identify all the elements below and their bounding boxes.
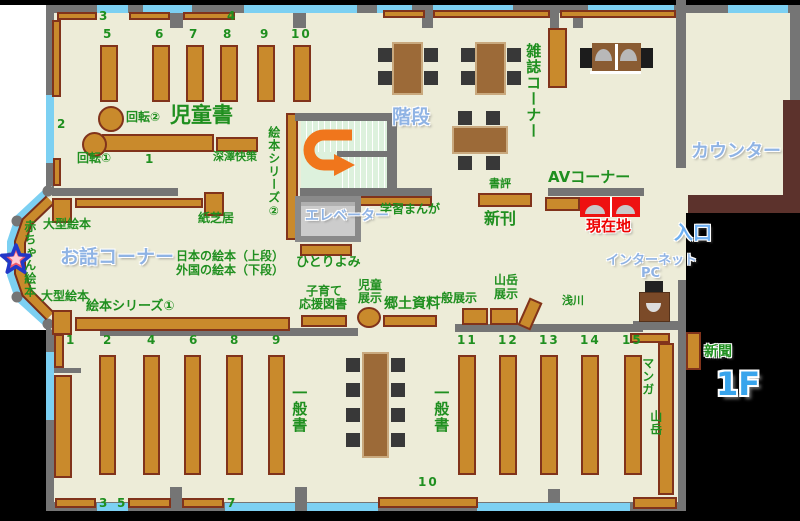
- bookshelf: [293, 45, 311, 102]
- sofa-armrest: [641, 48, 653, 68]
- shelf-number: 3: [99, 10, 107, 24]
- window: [728, 5, 788, 13]
- chair: [391, 433, 405, 447]
- area-label-stairs: 階段: [392, 108, 430, 127]
- bookshelf: [560, 10, 676, 18]
- chair: [458, 111, 472, 125]
- bookshelf: [540, 355, 558, 475]
- floor-label: 1F: [716, 368, 760, 400]
- u-turn-arrow-icon: [300, 123, 362, 185]
- shelf-label: 山岳: [648, 410, 662, 440]
- bookshelf: [433, 10, 550, 18]
- shelf-number: 4: [147, 334, 155, 348]
- chair: [391, 408, 405, 422]
- shelf-number: 3: [99, 497, 107, 511]
- chair: [486, 156, 500, 170]
- shelf-number: 5: [103, 28, 111, 42]
- wall: [676, 0, 686, 168]
- bookshelf: [75, 198, 203, 208]
- bookshelf: [99, 355, 116, 475]
- shelf-label: 学習まんが: [380, 203, 440, 217]
- area-label-elevator: エレベーター: [305, 209, 389, 223]
- area-label-kids-books: 児童書: [170, 103, 233, 127]
- shelf-number: 12: [498, 334, 519, 348]
- bookshelf: [226, 355, 243, 475]
- area-label-story-corner: お話コーナー: [60, 248, 174, 267]
- shelf-label: 絵本シリーズ①: [86, 300, 174, 315]
- shelf-label: 赤ちゃん絵本: [22, 220, 36, 320]
- wall: [633, 321, 686, 330]
- shelf-number: 11: [457, 334, 478, 348]
- shelf-label: 紙芝居: [198, 212, 234, 226]
- window: [46, 352, 54, 420]
- rotating-rack: [98, 106, 124, 132]
- bookshelf: [53, 158, 61, 186]
- chair: [378, 71, 392, 85]
- chair: [346, 408, 360, 422]
- window: [46, 95, 54, 163]
- shelf-label: 日本の絵本（上段）: [176, 250, 284, 264]
- area-label-av-corner: AVコーナー: [548, 169, 630, 186]
- exhibit-shelf: [462, 308, 488, 325]
- shelf-label: 回転①: [77, 152, 111, 166]
- bookshelf: [128, 498, 171, 508]
- shelf-label: 大型絵本: [43, 218, 91, 232]
- window: [307, 503, 378, 511]
- shelf-number: 8: [230, 334, 238, 348]
- shelf-number: 9: [260, 28, 268, 42]
- reading-table: [362, 352, 389, 458]
- wall: [790, 5, 800, 103]
- window: [225, 503, 295, 511]
- shelf-number: 2: [103, 334, 111, 348]
- area-label-newspaper: 新聞: [704, 344, 732, 360]
- shelf-label: 展示: [358, 292, 382, 306]
- bookshelf: [184, 355, 201, 475]
- bookshelf: [57, 12, 97, 20]
- newspaper-rack: [686, 332, 701, 370]
- sofa-divider: [615, 44, 618, 70]
- shelf-label: 大型絵本: [41, 290, 89, 304]
- wall-pillar: [548, 489, 560, 502]
- chair: [378, 48, 392, 62]
- shelf-label: 展示: [494, 288, 518, 302]
- bookshelf: [378, 497, 478, 508]
- bookshelf: [383, 10, 425, 18]
- shelf-number: 13: [539, 334, 560, 348]
- bookshelf: [257, 45, 275, 102]
- shelf-number: 10: [291, 28, 312, 42]
- shelf-label: 新刊: [484, 210, 516, 228]
- bookshelf: [478, 193, 532, 207]
- bookshelf: [52, 20, 61, 97]
- shelf-number: 14: [580, 334, 601, 348]
- chair: [458, 156, 472, 170]
- bookshelf: [143, 355, 160, 475]
- floor-map: 3 4 5 6 7 8 9 10 2 回転② 児童書 回転① 1 深澤快策 絵本…: [0, 0, 800, 521]
- shelf-number: 6: [189, 334, 197, 348]
- chair: [346, 358, 360, 372]
- current-location-label: 現在地: [586, 219, 631, 234]
- shelf-label: 山岳: [494, 274, 518, 288]
- area-label-general-books: 一般書: [432, 385, 449, 445]
- shelf-label: 絵本シリーズ②: [266, 126, 280, 226]
- shelf-number: 7: [189, 28, 197, 42]
- chair: [391, 383, 405, 397]
- pc-monitor-icon: [645, 281, 663, 292]
- wall: [46, 188, 178, 196]
- bookshelf: [102, 134, 214, 152]
- reading-table: [392, 42, 423, 95]
- bookshelf: [301, 315, 347, 327]
- shelf-number: 9: [272, 334, 280, 348]
- window: [477, 503, 630, 511]
- bookshelf: [52, 310, 72, 335]
- bookshelf: [54, 375, 72, 478]
- sofa-base: [590, 71, 641, 74]
- bookshelf: [220, 45, 238, 102]
- bookshelf: [383, 315, 437, 327]
- shelf-label: 深澤快策: [213, 151, 257, 164]
- shelf-number: 1: [145, 153, 153, 167]
- reading-table: [452, 126, 508, 154]
- chair: [507, 71, 521, 85]
- area-label-general-books: 一般書: [290, 385, 307, 445]
- shelf-label: 書評: [489, 178, 511, 191]
- shelf-number: 10: [418, 476, 439, 490]
- sofa-armrest: [580, 48, 592, 68]
- chair: [507, 48, 521, 62]
- bookshelf: [545, 197, 580, 211]
- chair: [391, 358, 405, 372]
- bookshelf: [268, 355, 285, 475]
- bookshelf: [75, 317, 290, 331]
- counter-desk: [688, 195, 800, 213]
- wall: [455, 324, 643, 332]
- bookshelf: [633, 497, 677, 509]
- window: [244, 5, 357, 13]
- bookshelf: [499, 355, 517, 475]
- bookshelf: [129, 12, 170, 20]
- bookshelf: [186, 45, 204, 102]
- shelf-number: 2: [57, 118, 65, 132]
- chair: [424, 48, 438, 62]
- chair: [424, 71, 438, 85]
- bookshelf: [54, 334, 64, 368]
- stairs-wall: [295, 113, 397, 121]
- shelf-number: 5: [117, 497, 125, 511]
- area-label-magazine-corner: 雑誌コーナー: [524, 43, 541, 128]
- shelf-label: 回転②: [126, 111, 160, 125]
- chair: [461, 71, 475, 85]
- shelf-number: 8: [223, 28, 231, 42]
- chair: [346, 433, 360, 447]
- wall-pillar: [550, 5, 559, 28]
- area-label-entrance: 入口: [674, 224, 712, 243]
- reading-table: [475, 42, 506, 95]
- shelf-label: 応援図書: [299, 298, 347, 312]
- chair: [346, 383, 360, 397]
- shelf-label: 外国の絵本（下段）: [176, 264, 284, 278]
- area-label-counter: カウンター: [691, 143, 781, 161]
- shelf-label: 浅川: [562, 295, 584, 308]
- bookshelf: [152, 45, 170, 102]
- chair: [461, 48, 475, 62]
- wall-stub: [53, 368, 81, 373]
- bookshelf: [182, 498, 224, 508]
- area-label-internet-pc: PC: [641, 267, 660, 280]
- counter-desk: [783, 100, 800, 196]
- bookshelf: [581, 355, 599, 475]
- magazine-shelf: [548, 28, 567, 88]
- wall: [548, 188, 644, 196]
- wall-pillar: [170, 487, 182, 502]
- chair: [486, 111, 500, 125]
- shelf-label: ひとりよみ: [296, 256, 361, 271]
- shelf-label: マンガ: [640, 357, 654, 397]
- exhibit-stand: [357, 307, 381, 328]
- shelf-number: 7: [227, 497, 235, 511]
- shelf-number: 15: [622, 334, 643, 348]
- wall: [300, 188, 432, 196]
- wall: [678, 280, 686, 511]
- shelf-number: 4: [227, 10, 235, 24]
- bookshelf: [458, 355, 476, 475]
- wall-pillar: [295, 487, 307, 502]
- bookshelf: [100, 45, 118, 102]
- exhibit-shelf: [490, 308, 518, 325]
- bookshelf: [55, 498, 96, 508]
- shelf-number: 6: [155, 28, 163, 42]
- shelf-number: 1: [66, 334, 74, 348]
- shelf-label: 一般展示: [429, 292, 477, 306]
